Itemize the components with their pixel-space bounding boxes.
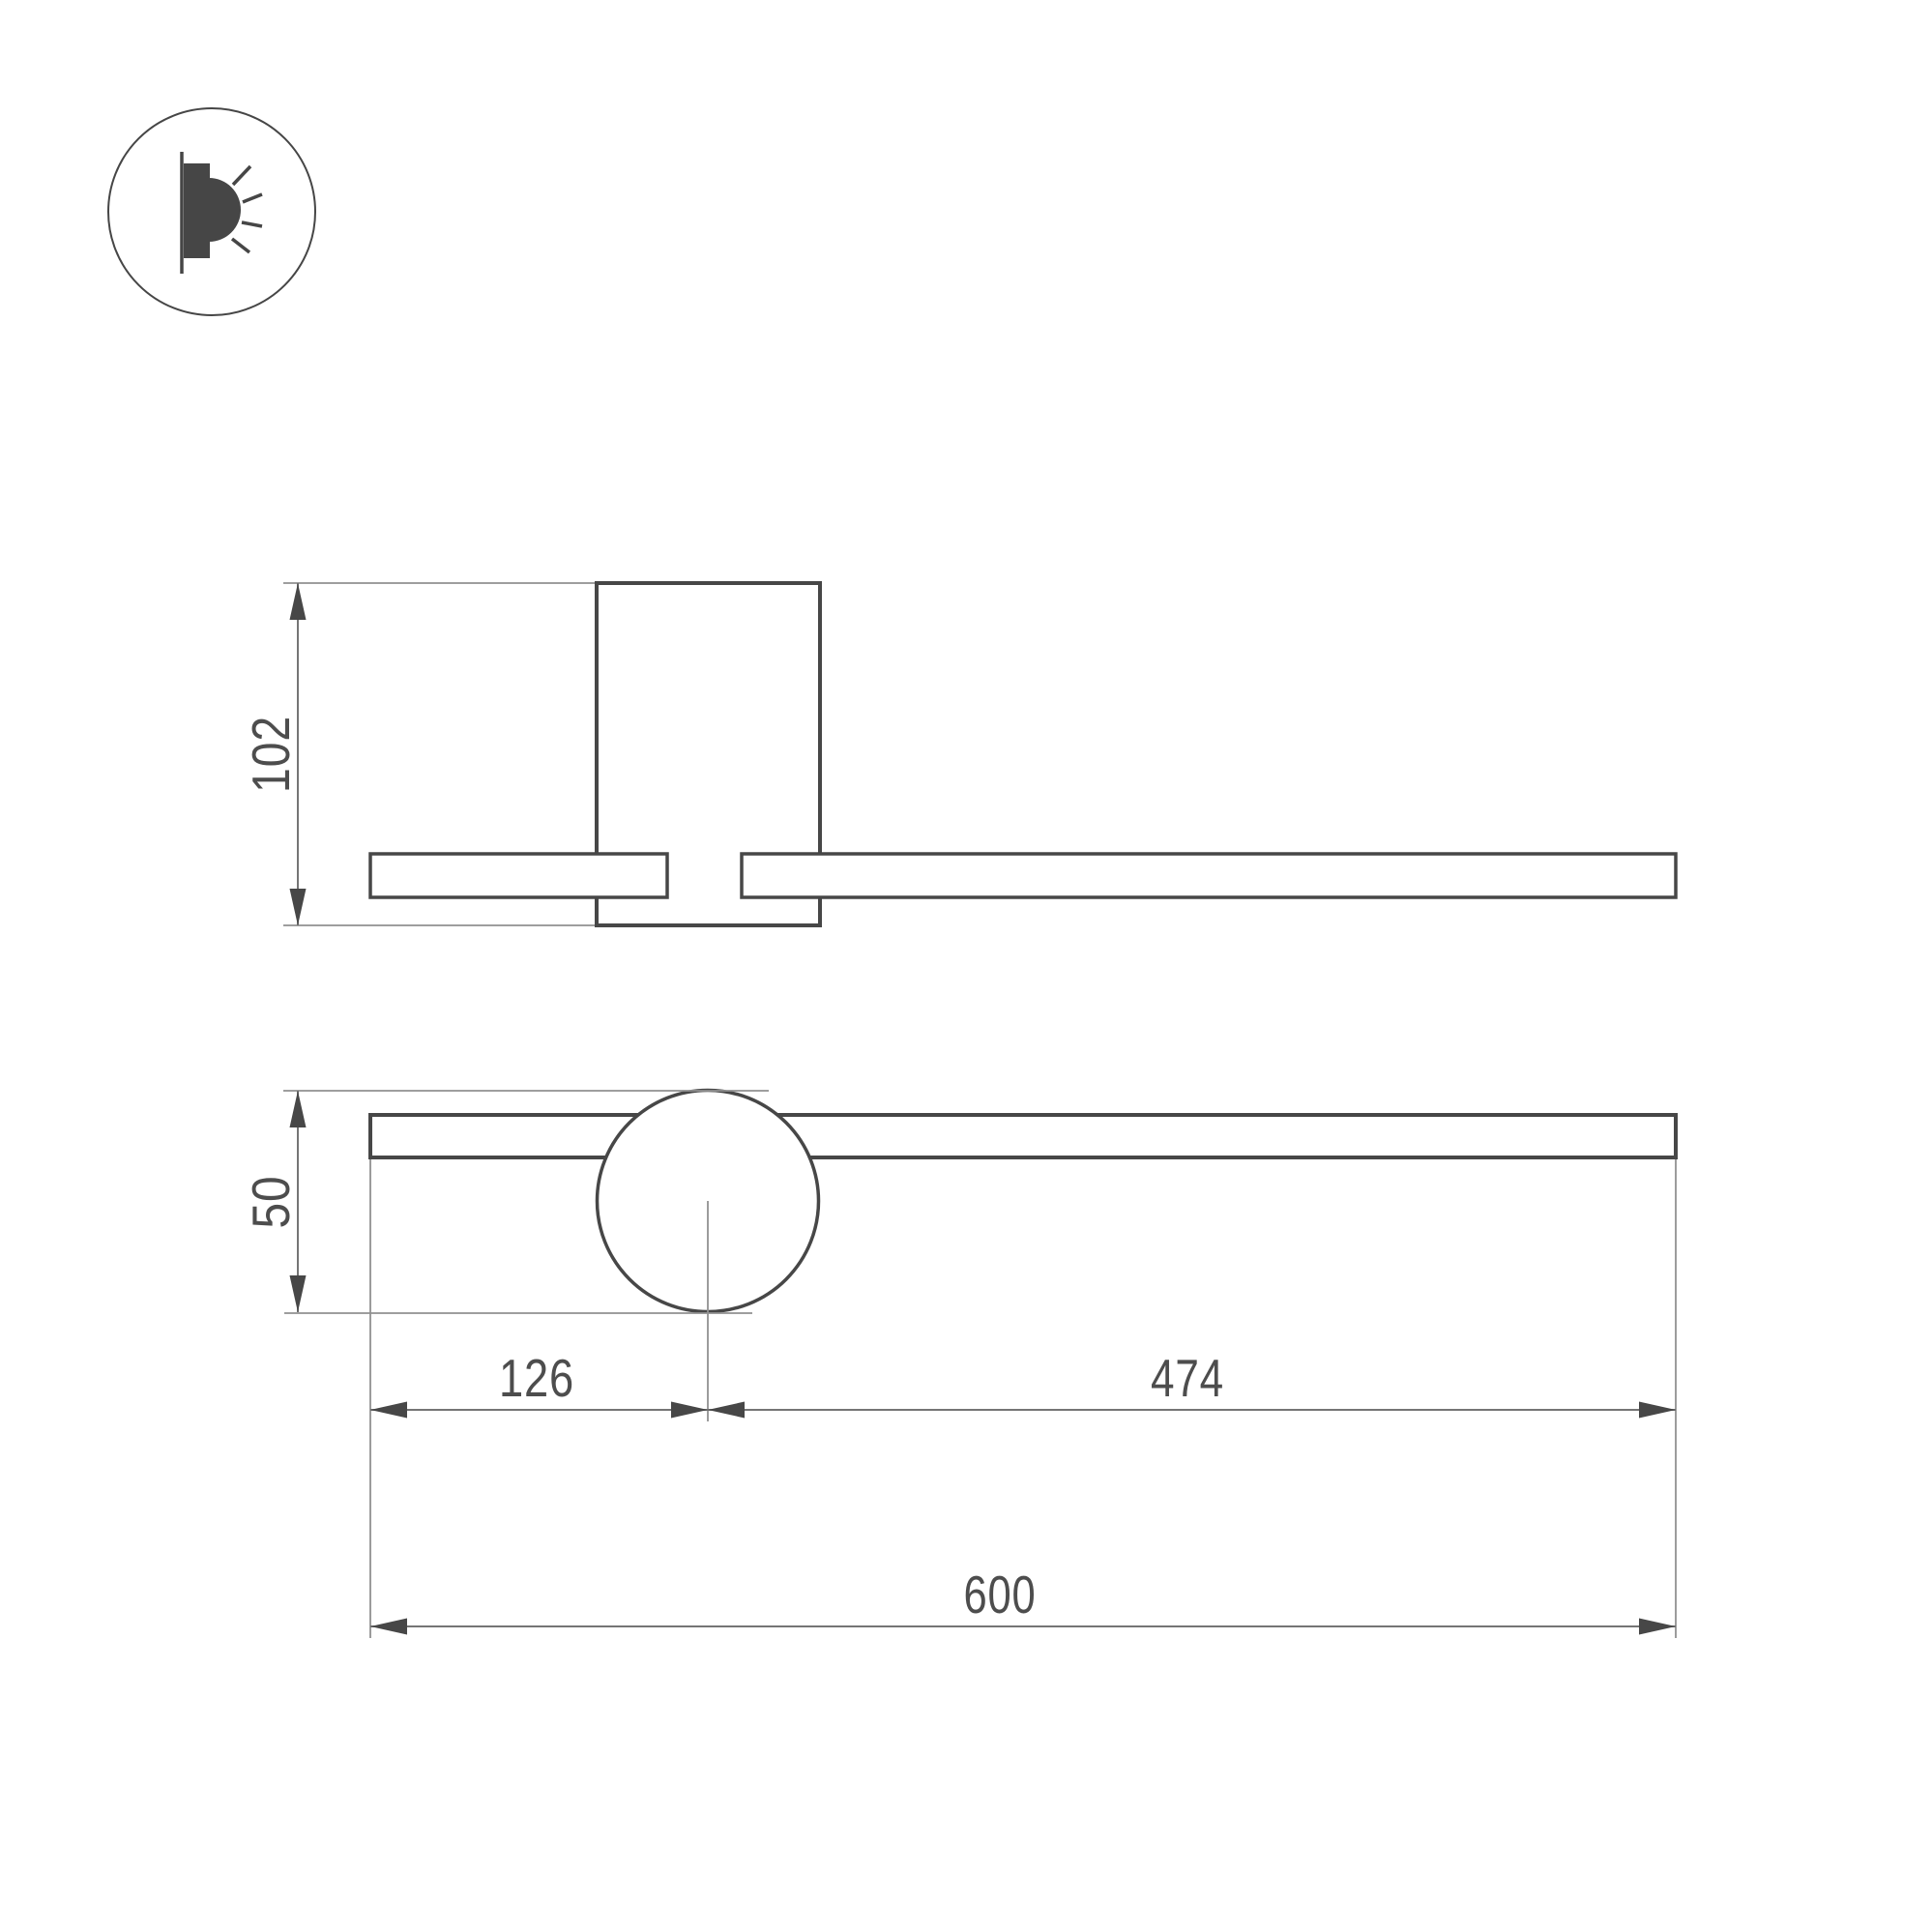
dim-50-label: 50 bbox=[241, 1176, 301, 1229]
dim-102-arrow-up bbox=[290, 583, 307, 620]
dim-474-arrow-right bbox=[1639, 1402, 1676, 1419]
dim-600-arrow-left bbox=[370, 1619, 407, 1635]
dimension-50: 50 bbox=[241, 1091, 307, 1312]
dim-600-label: 600 bbox=[964, 1565, 1037, 1625]
lamp-arm-front bbox=[370, 1115, 1676, 1157]
dim-474-arrow-left bbox=[708, 1402, 745, 1419]
dim-474-label: 474 bbox=[1151, 1348, 1224, 1408]
dimension-126: 126 bbox=[370, 1348, 708, 1419]
dimension-474: 474 bbox=[708, 1348, 1676, 1419]
arm-left-segment bbox=[370, 854, 667, 897]
front-view: 50 126 474 600 bbox=[241, 1091, 1676, 1639]
dim-126-arrow-right bbox=[671, 1402, 708, 1419]
dim-600-arrow-right bbox=[1639, 1619, 1676, 1635]
dimension-102: 102 bbox=[241, 583, 307, 925]
icon-lamp-body bbox=[184, 163, 210, 258]
icon-lamp-lens bbox=[209, 178, 241, 242]
arm-right-segment bbox=[742, 854, 1676, 897]
dimension-600: 600 bbox=[370, 1565, 1676, 1635]
side-view: 102 bbox=[241, 583, 1676, 925]
dim-50-arrow-down bbox=[290, 1275, 307, 1312]
technical-drawing-canvas: 102 50 126 bbox=[0, 0, 1932, 1932]
dim-102-arrow-down bbox=[290, 889, 307, 925]
dim-50-arrow-up bbox=[290, 1091, 307, 1127]
dim-126-arrow-left bbox=[370, 1402, 407, 1419]
wall-lamp-light-icon bbox=[108, 108, 315, 315]
dim-102-label: 102 bbox=[241, 716, 301, 793]
dim-126-label: 126 bbox=[499, 1348, 574, 1408]
